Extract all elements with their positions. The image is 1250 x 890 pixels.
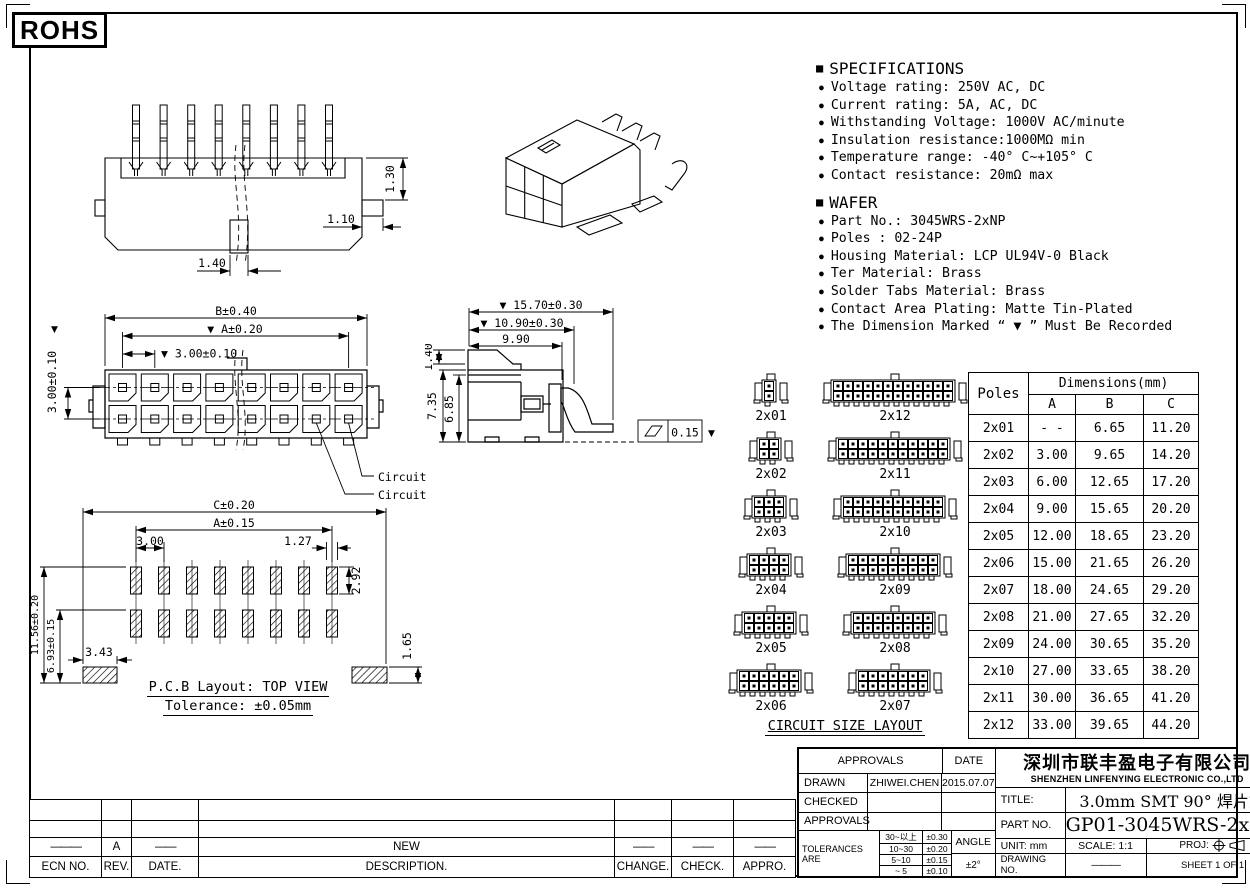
angle-value: ±2°: [952, 854, 995, 876]
approvals-label: APPROVALS: [799, 813, 867, 830]
connector-2x11: 2x11: [827, 430, 963, 482]
sheet-label: SHEET 1 OF 1: [1147, 854, 1250, 876]
poles-table-row: 2x0924.0030.6535.20: [969, 631, 1199, 658]
part-no-label: PART NO.: [996, 813, 1066, 838]
tolerances-label: TOLERANCES ARE: [799, 831, 879, 876]
revision-header-row: ECN NO.REV.DATE.DESCRIPTION.CHANGE.CHECK…: [30, 857, 796, 878]
angle-cell: ANGLE ±2°: [952, 831, 995, 876]
connector-size-label: 2x12: [879, 409, 910, 424]
specifications-list: ●Voltage rating: 250V AC, DC●Current rat…: [816, 79, 1216, 185]
dim-6-85: 6.85: [442, 395, 456, 423]
connector-size-label: 2x10: [879, 525, 910, 540]
projection-cell: PROJ:: [1147, 839, 1250, 853]
bullet-icon: ●: [816, 318, 824, 336]
unit-label: UNIT: mm: [996, 839, 1066, 853]
tolerance-table: 30~以上±0.3010~30±0.205~10±0.15~ 5±0.10: [879, 831, 952, 876]
pin-array: [129, 105, 336, 176]
square-bullet-icon: ■: [816, 192, 823, 213]
poles-table-row: 2x023.009.6514.20: [969, 442, 1199, 469]
approvals-header: APPROVALS: [799, 749, 942, 773]
connector-size-label: 2x01: [755, 409, 786, 424]
bullet-icon: ●: [816, 149, 824, 167]
bullet-icon: ●: [816, 79, 824, 97]
revision-row: ———A——NEW——————: [30, 838, 796, 857]
inspect-marker-icon: ▼: [51, 325, 58, 335]
connector-2x01: 2x01: [753, 372, 789, 424]
bullet-icon: ●: [816, 167, 824, 185]
dim-11-56: 11.56±0.20: [30, 595, 41, 655]
drawing-isometric-view: [482, 84, 704, 252]
dim-7-35: 7.35: [425, 392, 439, 420]
poles-table-row: 2x1027.0033.6538.20: [969, 658, 1199, 685]
circuit-size-row: 2x062x07: [721, 656, 969, 714]
pad-array: [131, 560, 338, 644]
bullet-icon: ●: [816, 248, 824, 266]
connector-size-label: 2x07: [879, 699, 910, 714]
poles-table-row: 2x049.0015.6520.20: [969, 496, 1199, 523]
specifications-block: ■ SPECIFICATIONS ●Voltage rating: 250V A…: [816, 58, 1216, 336]
poles-table-row: 2x0615.0021.6526.20: [969, 550, 1199, 577]
dim-1-65: 1.65: [400, 632, 414, 660]
dim-1-40-side: 1.40: [425, 343, 435, 371]
dim-2-92: 2.92: [349, 567, 363, 595]
connector-size-label: 2x02: [755, 467, 786, 482]
scale-label: SCALE: 1:1: [1066, 839, 1147, 853]
wafer-title: ■ WAFER: [816, 192, 1216, 213]
circuit-size-layout: 2x012x122x022x112x032x102x042x092x052x08…: [721, 366, 969, 734]
drawing-front-view: B±0.40 ▼ A±0.20 ▼ 3.00±0.10 ▼ 3.00±0.10 …: [40, 300, 430, 512]
revision-row: [30, 821, 796, 838]
svg-defs: [0, 0, 2, 2]
dim-a-pcb: A±0.15: [213, 516, 255, 530]
connector-2x08: 2x08: [842, 604, 948, 656]
proj-label: PROJ:: [1179, 840, 1208, 851]
col-b-header: B: [1076, 395, 1144, 415]
dimensions-header: Dimensions(mm): [1029, 373, 1199, 395]
circuit-size-rows: 2x012x122x022x112x032x102x042x092x052x08…: [721, 366, 969, 714]
datasheet-page: ROHS ■ SPECIFICATIONS ●Voltage rating: 2…: [0, 0, 1250, 890]
poles-table-row: 2x1233.0039.6544.20: [969, 712, 1199, 739]
dim-9-90: 9.90: [502, 332, 530, 346]
inspect-marker-icon: ▼: [708, 429, 715, 439]
poles-column-header: Poles: [969, 373, 1029, 415]
connector-size-label: 2x05: [755, 641, 786, 656]
part-no-value: GP01-3045WRS-2xNP: [1066, 813, 1250, 838]
angle-label: ANGLE: [952, 831, 995, 854]
bullet-icon: ●: [816, 230, 824, 248]
col-c-header: C: [1144, 395, 1199, 415]
dim-6-93: 6.93±0.15: [46, 619, 57, 673]
revision-row: [30, 800, 796, 821]
spec-item: ●Temperature range: -40° C~+105° C: [816, 149, 1216, 167]
connector-2x12: 2x12: [822, 372, 968, 424]
dim-1-27: 1.27: [284, 534, 312, 548]
connector-2x07: 2x07: [847, 662, 943, 714]
dim-3-43: 3.43: [85, 645, 113, 659]
pcb-caption: P.C.B Layout: TOP VIEW: [143, 679, 333, 695]
spec-item: ●The Dimension Marked “ ▼ ” Must Be Reco…: [816, 318, 1216, 336]
title-panel: 深圳市联丰盈电子有限公司 SHENZHEN LINFENYING ELECTRO…: [996, 749, 1250, 876]
spec-item: ●Housing Material: LCP UL94V-0 Black: [816, 248, 1216, 266]
poles-table-row: 2x0512.0018.6523.20: [969, 523, 1199, 550]
dim-1-10: 1.10: [327, 212, 355, 226]
flatness-value: 0.15: [671, 426, 699, 440]
connector-size-label: 2x08: [879, 641, 910, 656]
connector-size-label: 2x03: [755, 525, 786, 540]
spec-item: ●Contact Area Plating: Matte Tin-Plated: [816, 301, 1216, 319]
connector-size-label: 2x11: [879, 467, 910, 482]
connector-2x09: 2x09: [837, 546, 953, 598]
wafer-list: ●Part No.: 3045WRS-2xNP●Poles : 02-24P●H…: [816, 213, 1216, 336]
dim-b: B±0.40: [215, 304, 257, 318]
spec-item: ●Insulation resistance:1000MΩ min: [816, 132, 1216, 150]
drawn-label: DRAWN: [799, 774, 867, 792]
col-a-header: A: [1029, 395, 1076, 415]
spec-item: ●Withstanding Voltage: 1000V AC/minute: [816, 114, 1216, 132]
connector-2x06: 2x06: [728, 662, 814, 714]
square-bullet-icon: ■: [816, 58, 823, 79]
spec-item: ●Poles : 02-24P: [816, 230, 1216, 248]
circuit-size-row: 2x012x12: [721, 366, 969, 424]
rohs-label: ROHS: [20, 15, 99, 46]
poles-table-row: 2x036.0012.6517.20: [969, 469, 1199, 496]
company-block: 深圳市联丰盈电子有限公司 SHENZHEN LINFENYING ELECTRO…: [996, 749, 1250, 788]
circuit-size-row: 2x052x08: [721, 598, 969, 656]
poles-table-row: 2x0821.0027.6532.20: [969, 604, 1199, 631]
poles-dimension-table: Poles Dimensions(mm) A B C 2x01- -6.6511…: [968, 372, 1199, 739]
connector-size-label: 2x04: [755, 583, 786, 598]
spec-item: ●Voltage rating: 250V AC, DC: [816, 79, 1216, 97]
circuit-size-row: 2x022x11: [721, 424, 969, 482]
bullet-icon: ●: [816, 97, 824, 115]
bullet-icon: ●: [816, 213, 824, 231]
spec-item: ●Contact resistance: 20mΩ max: [816, 167, 1216, 185]
poles-table-row: 2x1130.0036.6541.20: [969, 685, 1199, 712]
spec-item: ●Part No.: 3045WRS-2xNP: [816, 213, 1216, 231]
revision-table: ———A——NEW——————ECN NO.REV.DATE.DESCRIPTI…: [29, 799, 796, 878]
connector-2x03: 2x03: [743, 488, 799, 540]
drawing-side-profile-view: ▼ 15.70±0.30 ▼ 10.90±0.30 9.90 1.40 7.35…: [425, 292, 720, 457]
connector-2x10: 2x10: [832, 488, 958, 540]
dim-pitch: ▼ 3.00±0.10: [161, 347, 237, 361]
company-name-en: SHENZHEN LINFENYING ELECTRONIC CO.,LTD: [1031, 774, 1244, 784]
poles-table-row: 2x01- -6.6511.20: [969, 415, 1199, 442]
dim-1-30: 1.30: [383, 165, 397, 193]
bullet-icon: ●: [816, 283, 824, 301]
tolerance-row: ~ 5±0.10: [880, 866, 951, 876]
dim-1-40: 1.40: [198, 256, 226, 270]
specifications-title: ■ SPECIFICATIONS: [816, 58, 1216, 79]
tolerance-row: 30~以上±0.30: [880, 831, 951, 844]
dim-c: C±0.20: [213, 498, 255, 512]
rohs-badge: ROHS: [12, 12, 107, 48]
pcb-tolerance-caption: Tolerance: ±0.05mm: [143, 698, 333, 714]
checked-label: CHECKED: [799, 793, 867, 811]
approvals-panel: APPROVALS DATE DRAWN ZHIWEI.CHEN 2015.07…: [799, 749, 996, 876]
dim-10-90: ▼ 10.90±0.30: [480, 316, 563, 330]
connector-2x05: 2x05: [733, 604, 809, 656]
circuit-size-row: 2x042x09: [721, 540, 969, 598]
connector-size-label: 2x09: [879, 583, 910, 598]
bullet-icon: ●: [816, 114, 824, 132]
corner-pad: [352, 667, 387, 683]
drawn-name: ZHIWEI.CHEN: [867, 774, 941, 792]
dim-a: ▼ A±0.20: [207, 322, 262, 336]
corner-mark-icon: [6, 860, 30, 884]
drawing-no-label: DRAWING NO.: [996, 854, 1066, 876]
connector-2x02: 2x02: [748, 430, 794, 482]
title-label: TITLE:: [996, 788, 1066, 812]
circuit-size-title: CIRCUIT SIZE LAYOUT: [721, 718, 969, 734]
dim-row-pitch: 3.00±0.10: [45, 351, 59, 413]
spec-item: ●Ter Material: Brass: [816, 265, 1216, 283]
connector-size-label: 2x06: [755, 699, 786, 714]
circuit-size-row: 2x032x10: [721, 482, 969, 540]
connector-2x04: 2x04: [738, 546, 804, 598]
corner-pad: [83, 667, 117, 683]
company-name-cn: 深圳市联丰盈电子有限公司: [1023, 753, 1250, 774]
dim-3-00: 3.00: [136, 534, 164, 548]
tolerance-row: 10~30±0.20: [880, 844, 951, 855]
poles-table-row: 2x0718.0024.6529.20: [969, 577, 1199, 604]
drawing-top-side-view: 1.30 1.10 1.40: [85, 90, 415, 286]
date-header: DATE: [942, 749, 995, 773]
spec-item: ●Solder Tabs Material: Brass: [816, 283, 1216, 301]
spec-item: ●Current rating: 5A, AC, DC: [816, 97, 1216, 115]
bullet-icon: ●: [816, 132, 824, 150]
title-value: 3.0mm SMT 90° 焊片式: [1066, 788, 1250, 812]
drawn-date: 2015.07.07: [941, 774, 995, 792]
tolerance-row: 5~10±0.15: [880, 855, 951, 866]
circuit1-label: Circuit 1: [378, 470, 430, 484]
bullet-icon: ●: [816, 301, 824, 319]
drawing-no-value: ———: [1066, 854, 1147, 876]
dim-15-70: ▼ 15.70±0.30: [499, 298, 582, 312]
title-block: APPROVALS DATE DRAWN ZHIWEI.CHEN 2015.07…: [797, 747, 1238, 878]
bullet-icon: ●: [816, 265, 824, 283]
third-angle-projection-icon: [1212, 839, 1246, 852]
